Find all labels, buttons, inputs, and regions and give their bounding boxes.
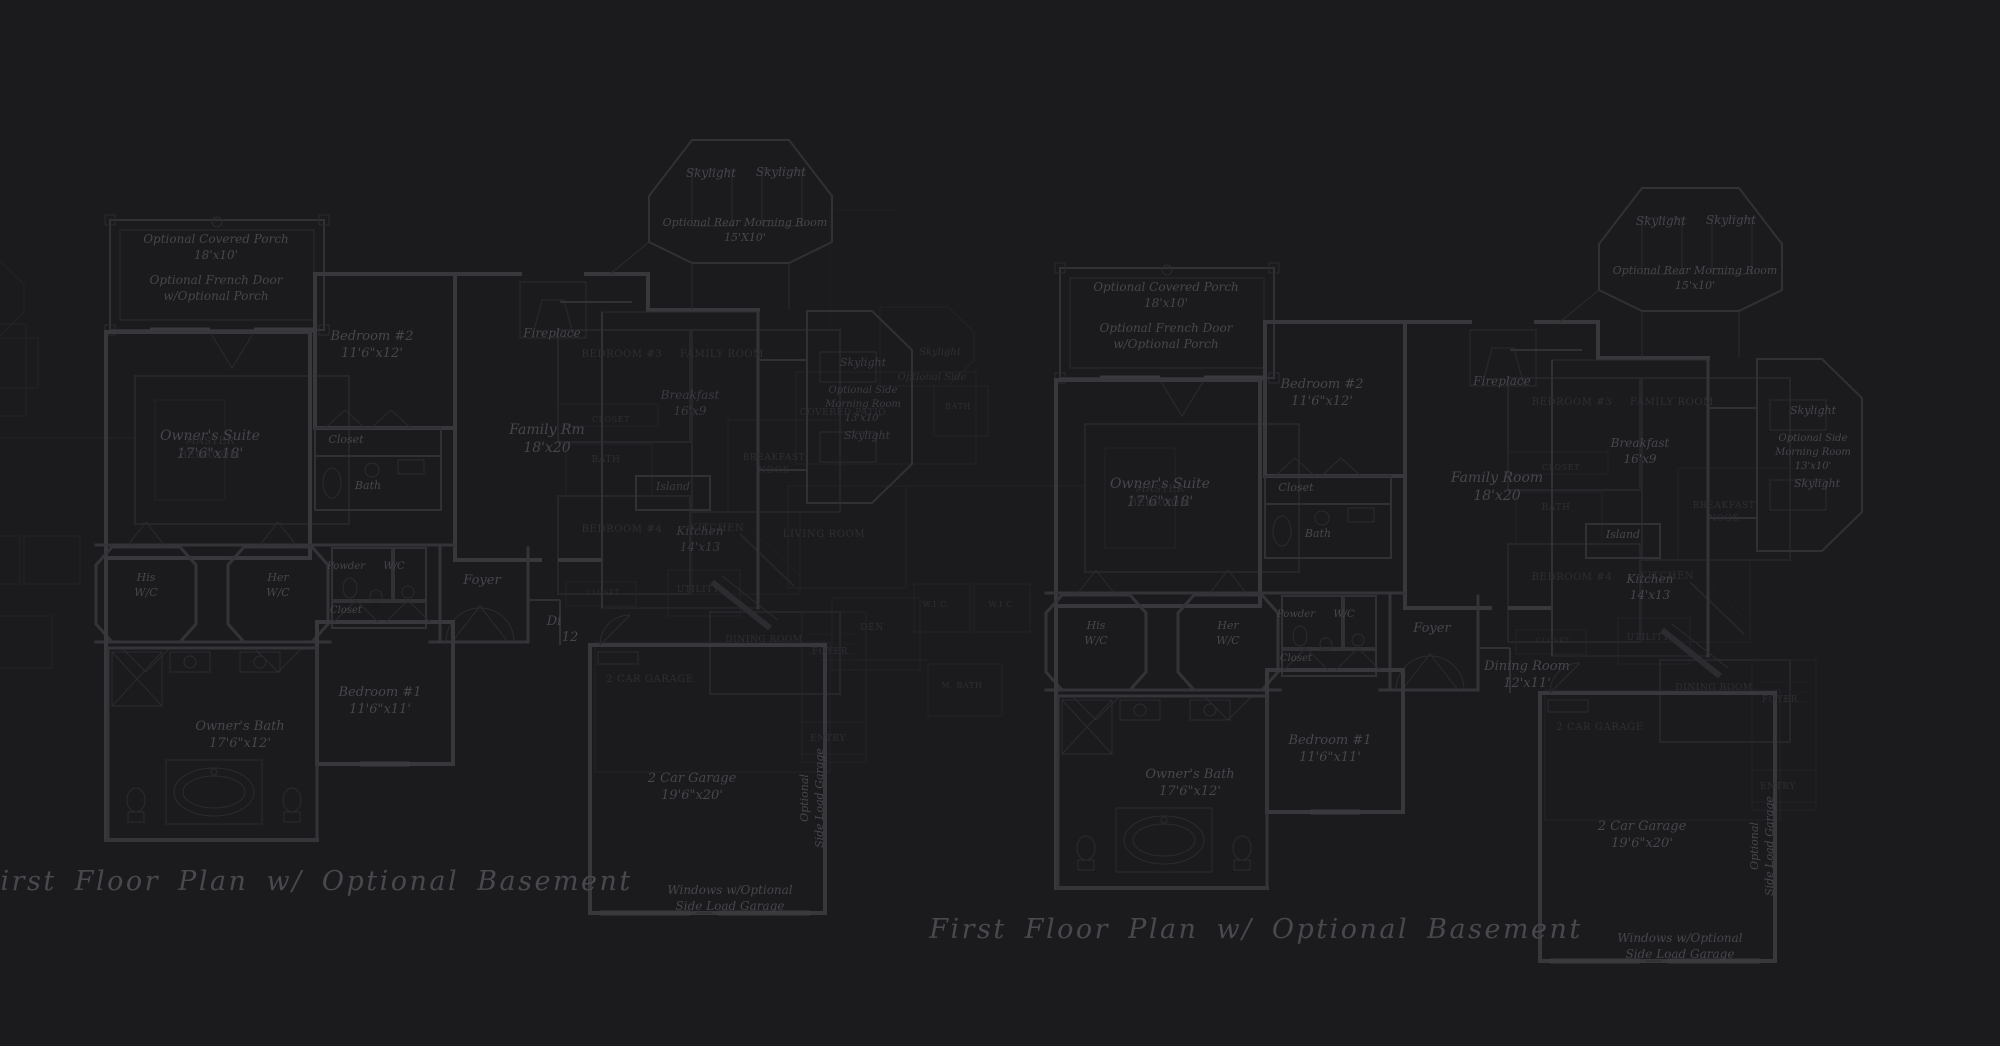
label-skylight-rear-1-right: Skylight [1636, 214, 1686, 228]
label-ghost-entry-left: ENTRY [810, 734, 846, 744]
label-ghost-familyroom-right: FAMILY ROOM [1630, 397, 1714, 408]
label-ghost-familyroom-left: FAMILY ROOM [680, 349, 764, 360]
label-ghost-entry-right: ENTRY [1760, 782, 1796, 792]
label-skylight-side-bottom-right: Skylight [1794, 477, 1841, 490]
label-ghost-kitchen-right: KITCHEN [1640, 571, 1695, 582]
label-ghost-wic1-right: W.I.C. [922, 600, 949, 609]
label-bedroom2-right: Bedroom #211'6"x12' [1279, 377, 1363, 409]
label-french-door-label-right: Optional French Doorw/Optional Porch [1100, 321, 1234, 351]
label-french-door-label-left: Optional French Doorw/Optional Porch [150, 273, 284, 303]
ghost-plan-left [0, 162, 866, 772]
label-bath-bedroom2-right: Bath [1304, 527, 1331, 540]
label-ghost-wic2-right: W.I.C. [988, 600, 1015, 609]
label-garage-left: 2 Car Garage19'6"x20' [647, 771, 737, 803]
label-ghost-dining-left: DINING ROOM [725, 635, 802, 645]
label-dining-clipped-2-left: 12 [562, 630, 579, 645]
label-foyer-left: Foyer [462, 573, 501, 588]
label-closet-hall-right: Closet [1280, 653, 1313, 664]
label-ghost-mbath-right: M. BATH [941, 681, 982, 690]
label-ghost-foyer-left: FOYER [812, 647, 848, 657]
label-ghost-covered-patio-right: COVERED PATIO [800, 408, 887, 418]
label-skylight-side-top-right: Skylight [1790, 404, 1837, 417]
label-ghost-closet-right: CLOSET [1542, 463, 1580, 472]
label-ghost-bedroom4-right: BEDROOM #4 [1532, 572, 1613, 583]
label-ghost-bath-left: BATH [592, 455, 621, 465]
label-skylight-rear-1-left: Skylight [686, 166, 736, 180]
label-ghost-opt-side-right: Optional Side [898, 372, 967, 383]
label-closet-hall-left: Closet [330, 605, 363, 616]
label-owners-bath-left: Owner's Bath17'6"x12' [195, 719, 284, 751]
label-ghost-foyer-right: FOYER [1762, 695, 1798, 705]
label-porch-label-left: Optional Covered Porch18'x10' [143, 232, 289, 262]
floor-plan-drawing: Optional Covered Porch18'x10'Optional Fr… [0, 0, 2000, 1046]
label-her-wc-left: HerW/C [266, 571, 290, 599]
label-ghost-garage-left: 2 CAR GARAGE [606, 674, 694, 685]
label-ghost-breakfast-nook-right: BREAKFASTNOOK [1693, 501, 1756, 524]
label-garage-right: 2 Car Garage19'6"x20' [1597, 819, 1687, 851]
label-fireplace-right: Fireplace [1472, 374, 1531, 388]
label-side-morning-room-left: Optional SideMorning Room13'x10' [824, 385, 901, 424]
label-dining-clipped-1-left: Di [546, 614, 562, 629]
label-plan-title-left: First Floor Plan w/ Optional Basement [0, 866, 633, 897]
label-island-left: Island [655, 480, 690, 493]
label-family-room-left: Family Rm18'x20 [508, 422, 585, 456]
label-side-load-vert-right: OptionalSide Load Garage [1748, 796, 1776, 896]
label-ghost-kitchen-left: KITCHEN [690, 523, 745, 534]
label-windows-optional-right: Windows w/OptionalSide Load Garage [1617, 931, 1742, 961]
label-ghost-utility-right: UTILITY [1627, 633, 1670, 643]
label-porch-label-right: Optional Covered Porch18'x10' [1093, 280, 1239, 310]
label-ghost-closet2-right: CLOSET [1536, 637, 1570, 645]
label-bath-bedroom2-left: Bath [354, 479, 381, 492]
label-ghost-closet-left: CLOSET [592, 415, 630, 424]
label-owners-bath-right: Owner's Bath17'6"x12' [1145, 767, 1234, 799]
label-skylight-rear-2-left: Skylight [756, 165, 806, 179]
label-windows-optional-left: Windows w/OptionalSide Load Garage [667, 883, 792, 913]
label-his-wc-left: HisW/C [134, 571, 158, 599]
label-ghost-utility-left: UTILITY [677, 585, 720, 595]
label-her-wc-right: HerW/C [1216, 619, 1240, 647]
label-ghost-bedroom3-left: BEDROOM #3 [582, 349, 663, 360]
label-ghost-bath-top-right: BATH [945, 402, 971, 411]
label-fireplace-left: Fireplace [522, 326, 581, 340]
label-wc-left: W/C [383, 561, 405, 572]
label-skylight-side-bottom-left: Skylight [844, 429, 891, 442]
label-ghost-skylight-right: Skylight [919, 347, 962, 358]
label-ghost-bedroom3-right: BEDROOM #3 [1532, 397, 1613, 408]
label-ghost-dining-right: DINING ROOM [1675, 683, 1752, 693]
label-closet-bedroom2-left: Closet [328, 433, 364, 446]
label-plan-title-right: First Floor Plan w/ Optional Basement [928, 914, 1583, 945]
label-side-morning-room-right: Optional SideMorning Room13'x10' [1774, 433, 1851, 472]
label-ghost-living-room-right: LIVING ROOM [783, 529, 865, 540]
label-family-room-right: Family Room18'x20 [1450, 470, 1543, 504]
label-ghost-closet2-left: CLOSET [586, 589, 620, 597]
label-bedroom1-right: Bedroom #111'6"x11' [1287, 733, 1371, 765]
label-side-load-vert-left: OptionalSide Load Garage [798, 748, 826, 848]
label-ghost-den-right: DEN [860, 623, 883, 633]
label-skylight-side-top-left: Skylight [840, 356, 887, 369]
label-bedroom2-left: Bedroom #211'6"x12' [329, 329, 413, 361]
label-foyer-right: Foyer [1412, 621, 1451, 636]
label-wc-right: W/C [1333, 609, 1355, 620]
label-closet-bedroom2-right: Closet [1278, 481, 1314, 494]
label-his-wc-right: HisW/C [1084, 619, 1108, 647]
label-ghost-bath-right: BATH [1542, 503, 1571, 513]
label-powder-left: Powder [326, 561, 366, 572]
label-ghost-bedroom4-left: BEDROOM #4 [582, 524, 663, 535]
ghost-plan-right [788, 210, 1816, 820]
label-ghost-garage-right: 2 CAR GARAGE [1556, 722, 1644, 733]
label-rear-morning-room-left: Optional Rear Morning Room15'X10' [663, 216, 828, 244]
label-bedroom1-left: Bedroom #111'6"x11' [337, 685, 421, 717]
label-powder-right: Powder [1276, 609, 1316, 620]
label-rear-morning-room-right: Optional Rear Morning Room15'x10' [1613, 264, 1778, 292]
blueprint-sheet: Optional Covered Porch18'x10'Optional Fr… [0, 0, 2000, 1046]
label-skylight-rear-2-right: Skylight [1706, 213, 1756, 227]
label-island-right: Island [1605, 528, 1640, 541]
